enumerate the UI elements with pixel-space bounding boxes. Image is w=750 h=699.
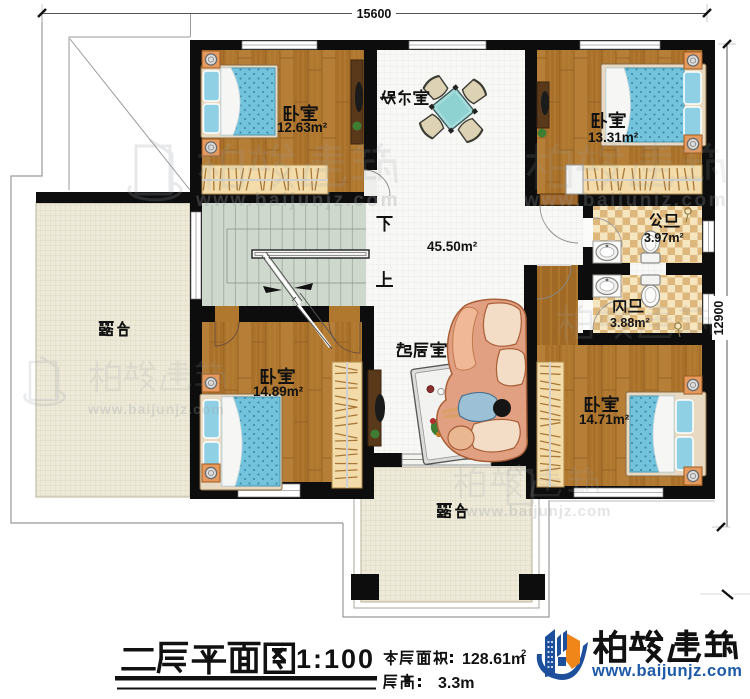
svg-text:128.61m: 128.61m bbox=[462, 651, 525, 668]
svg-text:www.baijunjz.com: www.baijunjz.com bbox=[465, 503, 611, 520]
svg-text:15600: 15600 bbox=[357, 7, 392, 21]
svg-text:www.baijunjz.com: www.baijunjz.com bbox=[87, 401, 225, 417]
svg-text:14.89m²: 14.89m² bbox=[253, 384, 304, 399]
svg-text:www.baijunjz.com: www.baijunjz.com bbox=[523, 190, 728, 211]
svg-text:3.97m²: 3.97m² bbox=[644, 231, 684, 245]
svg-text:www.baijunjz.com: www.baijunjz.com bbox=[591, 662, 742, 680]
svg-text:14.71m²: 14.71m² bbox=[579, 412, 630, 427]
svg-text:www.baijunjz.com: www.baijunjz.com bbox=[195, 190, 400, 211]
svg-text:12900: 12900 bbox=[712, 301, 726, 336]
svg-text:3.3m: 3.3m bbox=[438, 675, 474, 692]
svg-text:2: 2 bbox=[521, 648, 526, 659]
svg-text:1:100: 1:100 bbox=[296, 644, 375, 674]
svg-text:13.31m²: 13.31m² bbox=[588, 130, 639, 145]
svg-text:45.50m²: 45.50m² bbox=[427, 239, 478, 254]
svg-text:12.63m²: 12.63m² bbox=[277, 120, 328, 135]
